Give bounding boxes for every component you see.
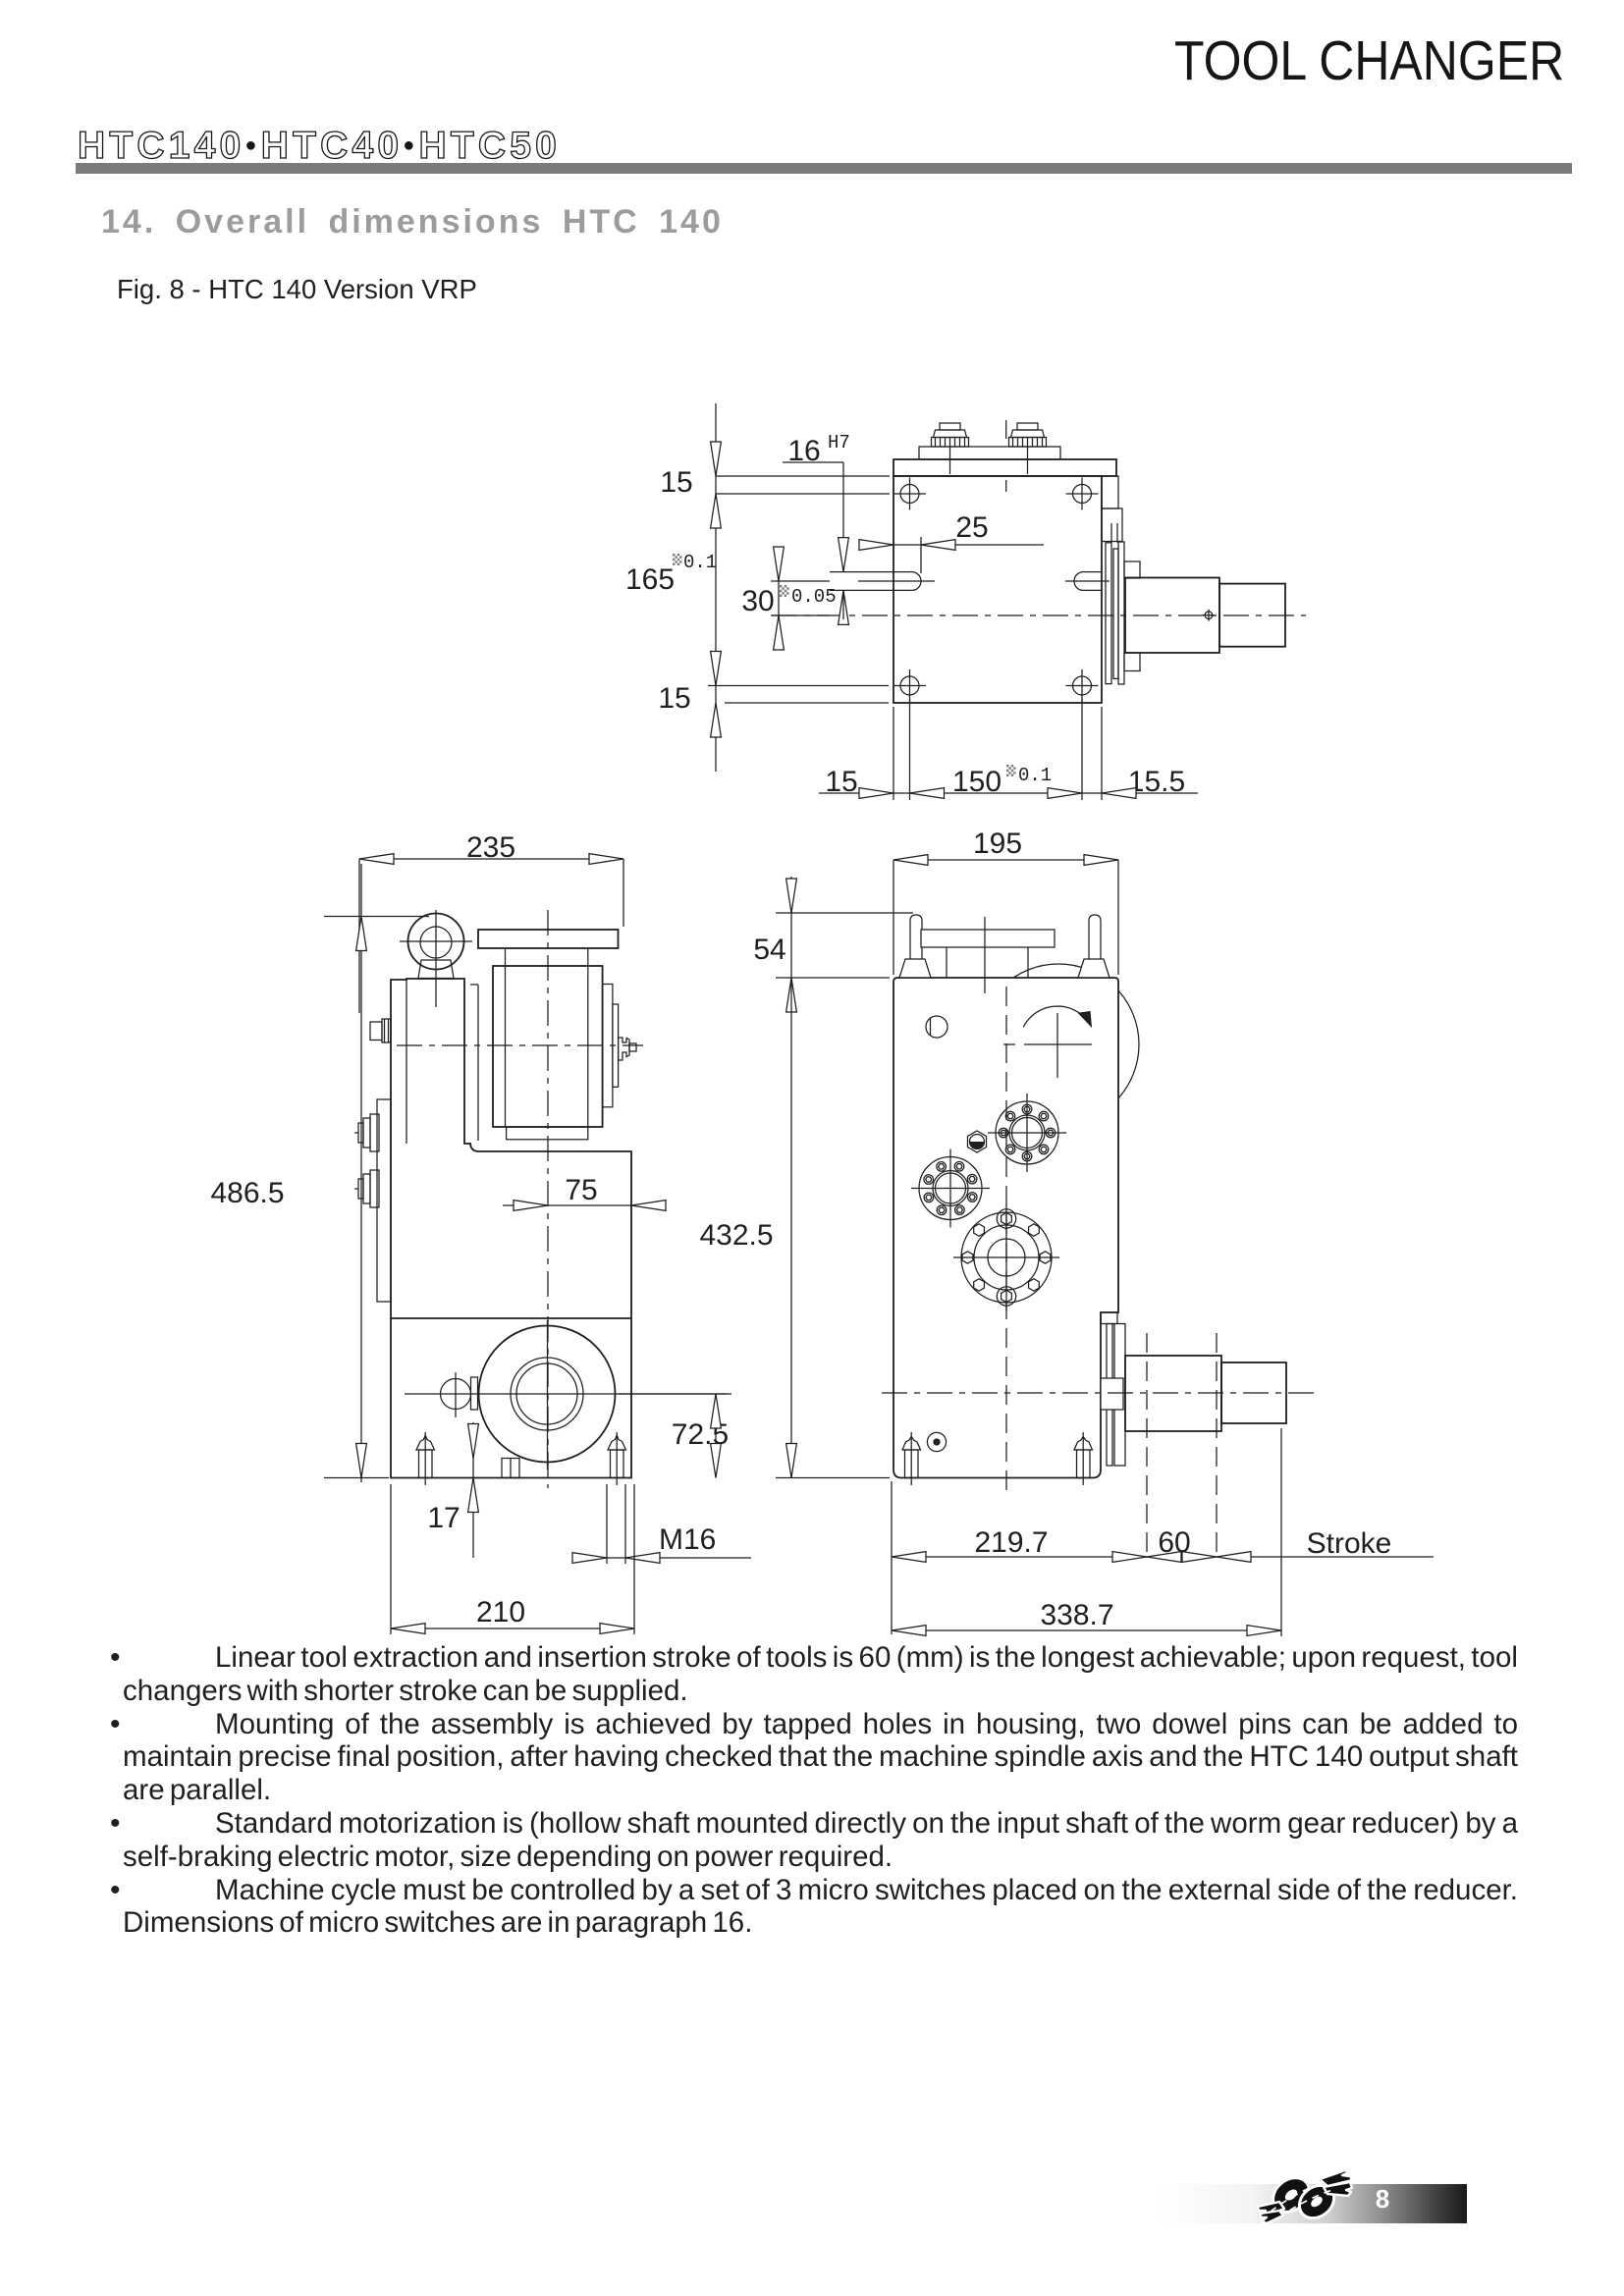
svg-text:8: 8 [1376,2184,1389,2214]
